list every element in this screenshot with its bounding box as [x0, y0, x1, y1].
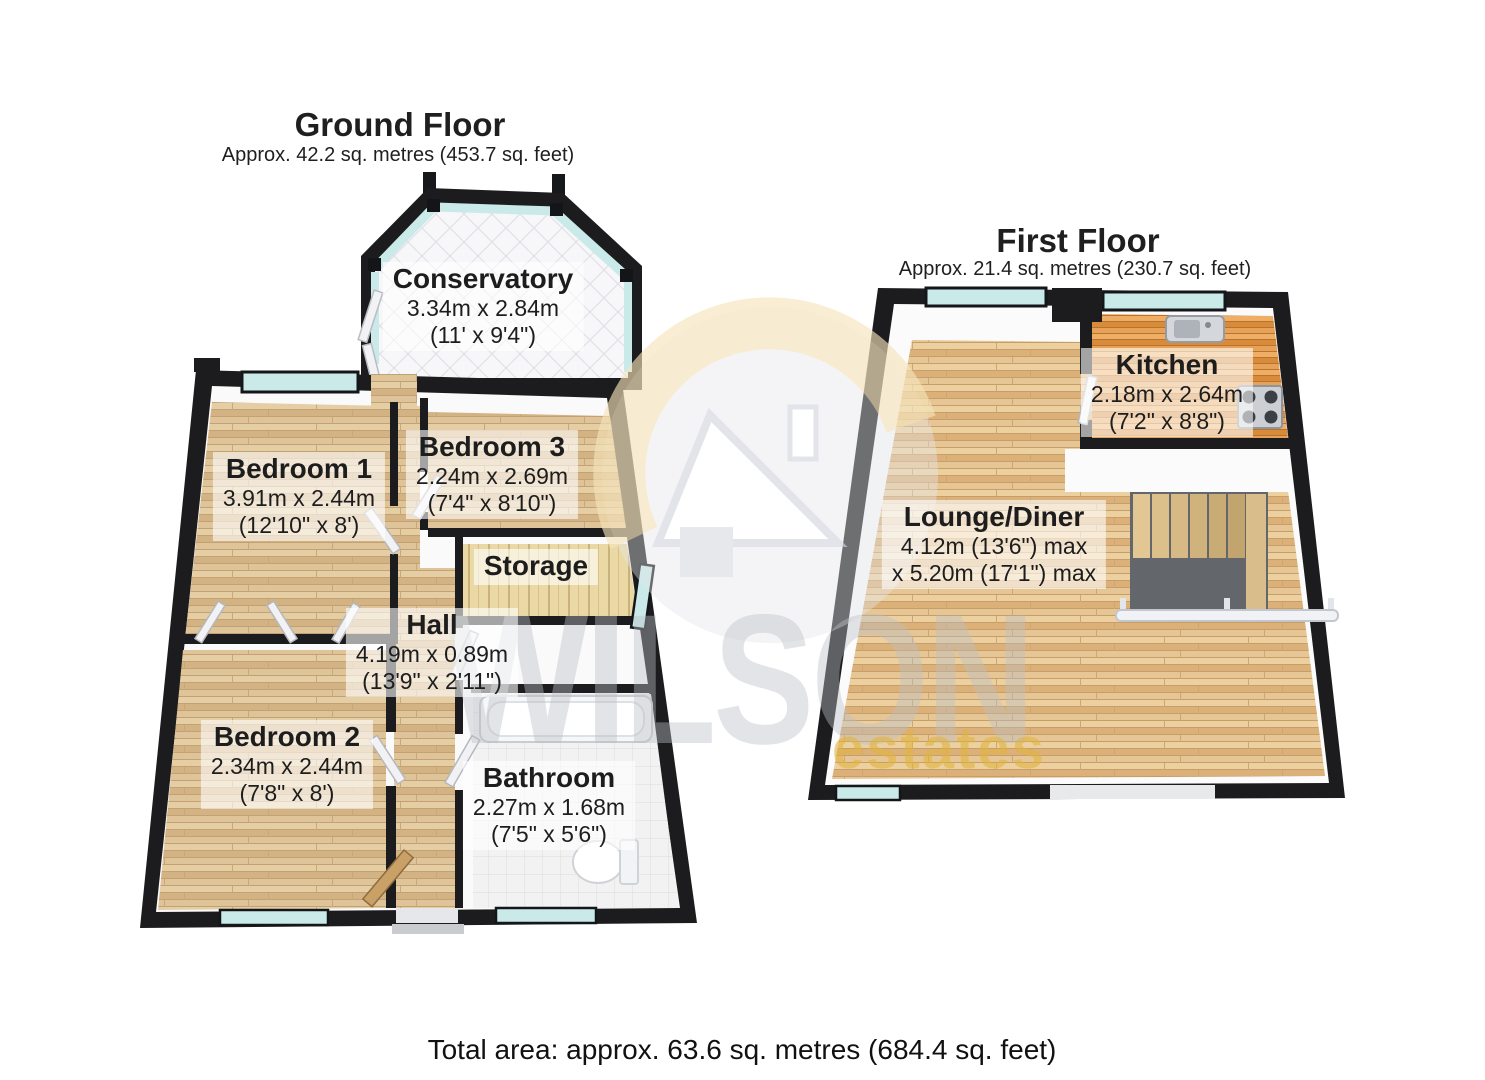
room-label-bedroom1: Bedroom 1 3.91m x 2.44m (12'10" x 8')	[213, 452, 385, 541]
room-label-bathroom: Bathroom 2.27m x 1.68m (7'5" x 5'6")	[463, 761, 635, 850]
room-label-storage: Storage	[474, 549, 598, 585]
first-floor-title: First Floor	[996, 222, 1159, 260]
room-label-bedroom2: Bedroom 2 2.34m x 2.44m (7'8" x 8')	[201, 720, 373, 809]
entrance-sill	[396, 908, 458, 923]
ground-floor-area: Approx. 42.2 sq. metres (453.7 sq. feet)	[222, 144, 574, 167]
rear-sill	[1050, 785, 1215, 799]
kitchen-window	[1103, 292, 1225, 310]
lounge-window	[926, 288, 1046, 306]
bedroom2-window	[220, 910, 328, 925]
room-label-lounge-diner: Lounge/Diner 4.12m (13'6") max x 5.20m (…	[882, 500, 1106, 589]
entrance-step	[392, 924, 464, 934]
room-label-bedroom3: Bedroom 3 2.24m x 2.69m (7'4" x 8'10")	[406, 430, 578, 519]
stair-handrail	[1116, 610, 1338, 621]
total-area-text: Total area: approx. 63.6 sq. metres (684…	[428, 1034, 1057, 1066]
bedroom1-bay-window	[242, 372, 358, 392]
room-label-conservatory: Conservatory 3.34m x 2.84m (11' x 9'4")	[383, 262, 584, 351]
bathroom-window	[496, 908, 596, 923]
room-label-kitchen: Kitchen 2.18m x 2.64m (7'2" x 8'8")	[1081, 348, 1253, 437]
room-label-hall: Hall 4.19m x 0.89m (13'9" x 2'11")	[346, 608, 518, 697]
first-floor-area: Approx. 21.4 sq. metres (230.7 sq. feet)	[899, 258, 1251, 281]
lounge-rear-window	[836, 786, 900, 800]
ground-floor-title: Ground Floor	[295, 106, 506, 144]
